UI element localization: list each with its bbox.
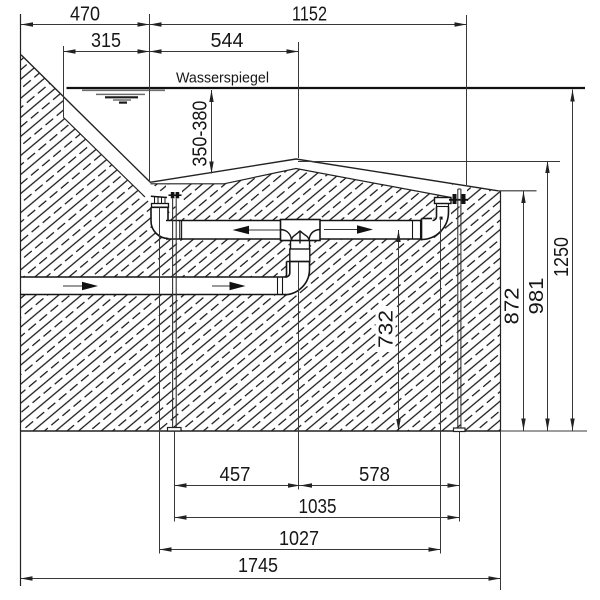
svg-text:872: 872 — [502, 288, 524, 325]
svg-text:578: 578 — [359, 464, 390, 486]
svg-text:350-380: 350-380 — [190, 101, 212, 167]
svg-text:1035: 1035 — [299, 496, 337, 518]
svg-text:470: 470 — [70, 4, 100, 26]
svg-text:Wasserspiegel: Wasserspiegel — [176, 70, 269, 87]
svg-text:1745: 1745 — [238, 555, 278, 577]
svg-text:1027: 1027 — [279, 528, 319, 550]
svg-text:544: 544 — [211, 30, 244, 52]
svg-text:1250: 1250 — [551, 237, 573, 277]
svg-text:315: 315 — [91, 30, 121, 52]
svg-text:1152: 1152 — [292, 4, 327, 26]
svg-text:981: 981 — [526, 278, 548, 315]
svg-text:457: 457 — [220, 464, 251, 486]
svg-text:732: 732 — [376, 310, 398, 348]
